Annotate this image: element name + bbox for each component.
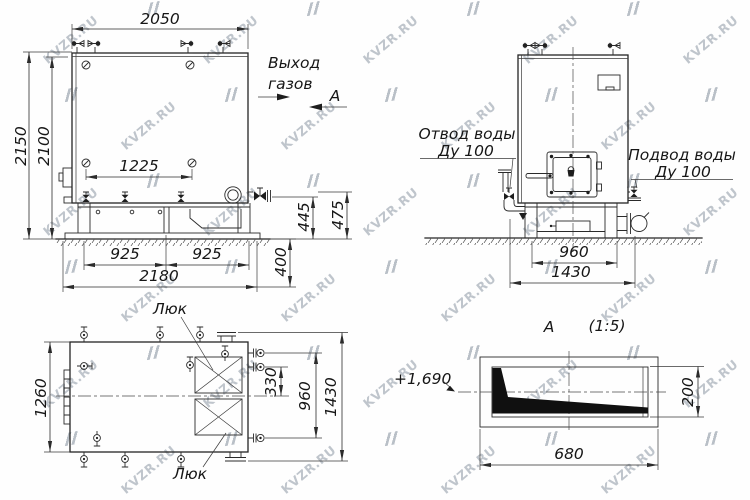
dim-base-span-right: 925 (192, 245, 222, 263)
dim-overall-depth: 1430 (322, 377, 340, 417)
hatch-labels: Люк Люк (152, 300, 226, 483)
furnace-door (526, 152, 602, 197)
boiler-technical-drawing: KVZR.RUKVZR.RUKVZR.RUKVZR.RUKVZR.RUKVZR.… (0, 0, 750, 500)
side-view: 960 1430 Отвод воды Ду 100 Подвод воды Д… (418, 43, 735, 289)
hatch-bottom-label: Люк (172, 465, 208, 483)
dim-overall-width: 1430 (551, 263, 591, 281)
door-handle (526, 174, 553, 179)
section-letter: А (329, 87, 341, 105)
front-dimensions: 2050 2150 2100 1225 925 925 2180 (12, 10, 352, 292)
water-outlet-text-1: Отвод воды (418, 125, 515, 143)
valve-icon (121, 192, 130, 203)
dim-outlet-a: 445 (295, 202, 313, 232)
flange-bottom (225, 452, 246, 461)
drawing-svg: 2050 2150 2100 1225 925 925 2180 (0, 0, 750, 500)
elevation-label: +1,690 (394, 370, 455, 392)
nameplate (598, 75, 620, 90)
dim-stub-span: 960 (296, 381, 314, 411)
valve-icon (88, 41, 100, 54)
section-dimensions: 200 680 (480, 367, 704, 471)
gas-outlet-label: Выход газов (258, 54, 320, 100)
dim-depth-body: 1260 (32, 378, 50, 418)
dim-base-width: 960 (559, 243, 589, 261)
dim-outlet-b: 475 (329, 200, 347, 230)
valve-icon (94, 431, 101, 446)
valve-icon (523, 43, 535, 56)
water-outlet-pipe (498, 170, 527, 220)
dim-width: 680 (554, 445, 584, 463)
section-title-letter: А (543, 318, 555, 336)
dim-width-top: 2050 (140, 10, 180, 28)
valve-icon (218, 41, 230, 54)
flange-icon (225, 187, 241, 203)
valve-icon (177, 192, 186, 203)
front-view: 2050 2150 2100 1225 925 925 2180 (12, 10, 352, 292)
water-inlet-text-2: Ду 100 (654, 163, 711, 181)
section-view: А (1:5) +1,690 200 680 (394, 317, 704, 470)
valve-icon (157, 327, 164, 342)
dim-stub-offset: 330 (262, 367, 280, 397)
valve-icon (187, 357, 194, 372)
pipe-stub-icon (248, 349, 264, 358)
elevation-text: +1,690 (394, 370, 451, 388)
hatch-bottom (195, 399, 242, 435)
dim-height: 200 (679, 377, 697, 407)
ground-hatch (56, 239, 270, 246)
valve-icon (82, 192, 91, 203)
water-inlet-text-1: Подвод воды (628, 146, 736, 164)
base-frame-side (425, 203, 702, 245)
side-dimensions: 960 1430 (510, 219, 635, 288)
plan-view: 1260 330 960 1430 Люк Люк (32, 300, 348, 483)
gas-outlet-text-1: Выход (268, 54, 320, 72)
hatch-top (195, 357, 242, 393)
dim-base-span-left: 925 (110, 245, 140, 263)
section-title-scale: (1:5) (588, 317, 625, 335)
boiler-body-front (59, 41, 271, 204)
valve-icon (72, 41, 84, 54)
water-outlet-label: Отвод воды Ду 100 (418, 125, 516, 187)
water-inlet-label: Подвод воды Ду 100 (628, 146, 736, 188)
valve-icon (77, 363, 92, 370)
valve-icon (197, 327, 204, 342)
pipe-stub-icon (248, 434, 264, 443)
dim-valve-spacing: 1225 (119, 157, 158, 175)
dim-height-body: 2100 (35, 126, 53, 166)
drain-flange (617, 213, 649, 235)
right-stub-valve (248, 188, 271, 202)
centerline (458, 351, 666, 432)
water-inlet-valve (628, 187, 641, 201)
plan-dimensions: 1260 330 960 1430 (32, 333, 348, 462)
valve-icon (81, 452, 88, 467)
left-fitting (59, 168, 72, 203)
valve-icon (535, 43, 547, 56)
lock-icon (568, 167, 575, 177)
deposit-wedge (493, 368, 649, 414)
valve-icon (81, 327, 88, 342)
boiler-body-plan (70, 342, 248, 452)
left-hinge-strip (64, 370, 70, 424)
hatch-top-label: Люк (152, 300, 188, 318)
vent-fitting-icon (82, 61, 196, 167)
section-mark: А (309, 87, 347, 110)
valve-icon (222, 346, 229, 361)
dim-foundation: 400 (272, 247, 290, 277)
dim-height-overall: 2150 (12, 126, 30, 166)
water-outlet-text-2: Ду 100 (437, 142, 494, 160)
flue-flange-top (217, 333, 236, 343)
base-frame-front (56, 203, 270, 246)
valve-icon (181, 41, 193, 54)
valve-icon (608, 43, 620, 56)
gas-outlet-text-2: газов (268, 75, 313, 93)
valve-icon (122, 452, 129, 467)
dim-base-overall: 2180 (139, 267, 179, 285)
